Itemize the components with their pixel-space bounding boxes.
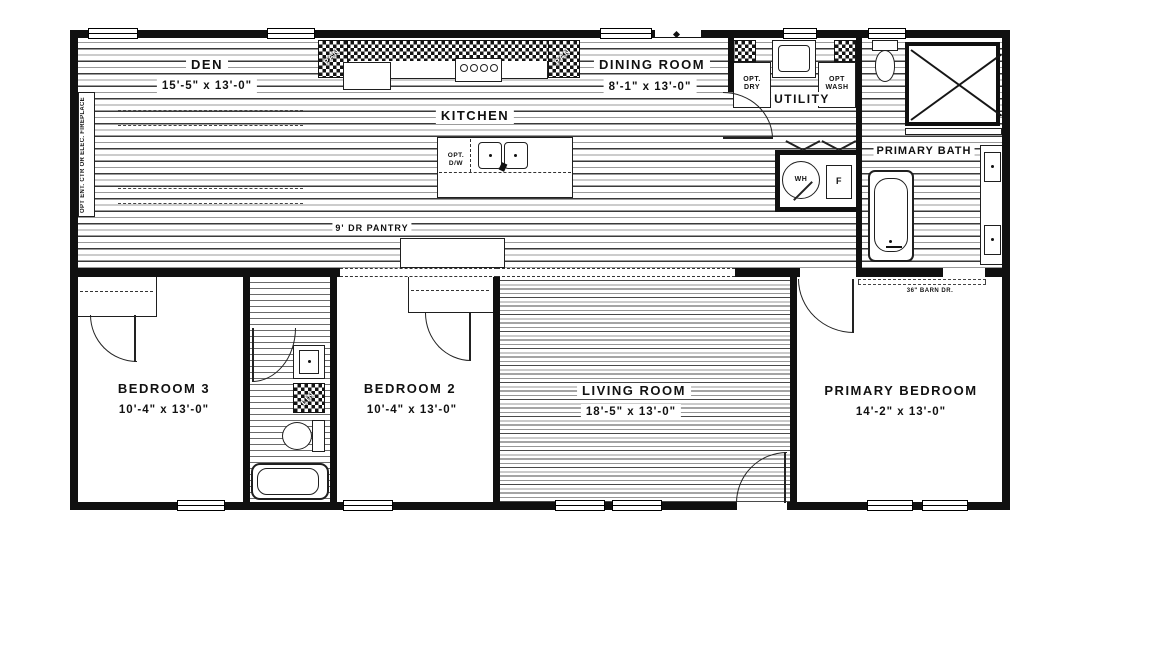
den-dashed-outline xyxy=(118,110,303,126)
barn-door-label: 36" BARN DR. xyxy=(895,287,965,295)
door-arc-primary-bedroom xyxy=(798,279,854,333)
furnace-label: F xyxy=(828,177,850,185)
front-door-opening xyxy=(737,502,787,511)
primary-bedroom-label: PRIMARY BEDROOM xyxy=(819,383,982,399)
opening-living-room xyxy=(497,268,735,277)
door-arc-bedroom3 xyxy=(90,315,137,362)
window xyxy=(868,28,906,39)
closet-bedroom3 xyxy=(77,277,157,317)
door-leaf-bedroom2 xyxy=(469,313,471,361)
door-leaf-bedroom3 xyxy=(134,315,136,362)
primary-bath-label: PRIMARY BATH xyxy=(874,144,975,158)
closet-rod-line xyxy=(80,291,153,292)
bedroom2-dims: 10'-4" x 13'-0" xyxy=(362,402,462,418)
window xyxy=(600,28,652,39)
opt-dishwasher-label: OPT. D/W xyxy=(442,152,470,168)
shower-threshold xyxy=(905,128,1002,135)
wall-middle xyxy=(985,268,1002,277)
tub-faucet-icon xyxy=(886,246,902,248)
wall-middle xyxy=(856,268,943,277)
kitchen-label: KITCHEN xyxy=(436,108,514,124)
window xyxy=(177,500,225,511)
window xyxy=(88,28,138,39)
toilet-tank xyxy=(312,420,325,452)
burner-icon xyxy=(470,64,478,72)
den-label: DEN xyxy=(186,57,228,73)
wall-bath-bedroom2 xyxy=(330,277,337,502)
door-leaf-primary-bedroom xyxy=(852,279,854,333)
barn-door-track xyxy=(858,279,986,285)
floor-plan: OPT ENT. CTR OR ELEC. FIREPLACE PAN PAN … xyxy=(0,0,1152,648)
pantry-label: 9' DR PANTRY xyxy=(332,221,411,235)
wall-middle xyxy=(735,268,800,277)
window xyxy=(612,500,662,511)
living-room-label: LIVING ROOM xyxy=(577,383,691,399)
primary-bedroom-dims: 14'-2" x 13'-0" xyxy=(851,404,951,420)
utility-sink-bowl xyxy=(778,45,810,72)
island-dashed-line xyxy=(439,172,571,173)
den-dashed-outline xyxy=(118,188,303,204)
opening-barn-door xyxy=(943,268,985,277)
sink-drain-icon xyxy=(514,154,517,157)
burner-icon xyxy=(490,64,498,72)
door-arc-bedroom2 xyxy=(425,313,471,361)
opt-dryer-label: OPT. DRY xyxy=(736,76,768,92)
window xyxy=(867,500,913,511)
bedroom2-label: BEDROOM 2 xyxy=(359,381,461,397)
sink-drain-icon xyxy=(489,154,492,157)
kitchen-backsplash xyxy=(318,40,580,62)
closet-rod-line xyxy=(411,290,489,291)
utility-label: UTILITY xyxy=(771,92,833,106)
burner-icon xyxy=(460,64,468,72)
sink-drain-icon xyxy=(308,360,311,363)
bedroom3-label: BEDROOM 3 xyxy=(113,381,215,397)
window xyxy=(267,28,315,39)
bathtub-basin xyxy=(257,468,319,495)
window xyxy=(343,500,393,511)
bedroom3-dims: 10'-4" x 13'-0" xyxy=(114,402,214,418)
toilet-bowl xyxy=(875,50,895,82)
window xyxy=(555,500,605,511)
door-leaf-front-entry xyxy=(784,452,786,503)
window xyxy=(922,500,968,511)
tub-drain-icon xyxy=(889,240,892,243)
living-room-dims: 18'-5" x 13'-0" xyxy=(581,404,681,420)
wall-bedroom3-bath xyxy=(243,277,250,502)
wall-living-primary xyxy=(790,277,797,502)
den-dims: 15'-5" x 13'-0" xyxy=(157,78,257,94)
window xyxy=(783,28,817,39)
pantry-closet xyxy=(400,238,505,268)
opt-entertainment-center-label: OPT ENT. CTR OR ELEC. FIREPLACE xyxy=(80,96,93,214)
toilet-bowl xyxy=(282,422,312,450)
opening-hallway xyxy=(340,268,497,277)
utility-cabinet xyxy=(834,40,856,62)
range xyxy=(455,58,502,82)
burner-icon xyxy=(480,64,488,72)
wall-middle xyxy=(70,268,340,277)
dining-room-label: DINING ROOM xyxy=(594,57,710,73)
opt-washer-label: OPT WASH xyxy=(820,76,854,92)
wall-bedroom2-living xyxy=(493,277,500,502)
wall-utility-bath xyxy=(856,37,862,268)
sink-drain-icon xyxy=(991,165,994,168)
island-dw-divider xyxy=(470,139,471,172)
door-leaf-hall-bath xyxy=(252,328,254,382)
wall-dining-utility xyxy=(728,37,734,92)
dining-room-dims: 8'-1" x 13'-0" xyxy=(604,79,697,95)
sink-drain-icon xyxy=(991,238,994,241)
closet-bedroom2 xyxy=(408,277,493,313)
wall-exterior-right xyxy=(1002,30,1010,510)
opening-primary-bedroom-door xyxy=(800,268,856,277)
refrigerator xyxy=(343,62,391,90)
door-leaf-utility xyxy=(723,137,773,139)
